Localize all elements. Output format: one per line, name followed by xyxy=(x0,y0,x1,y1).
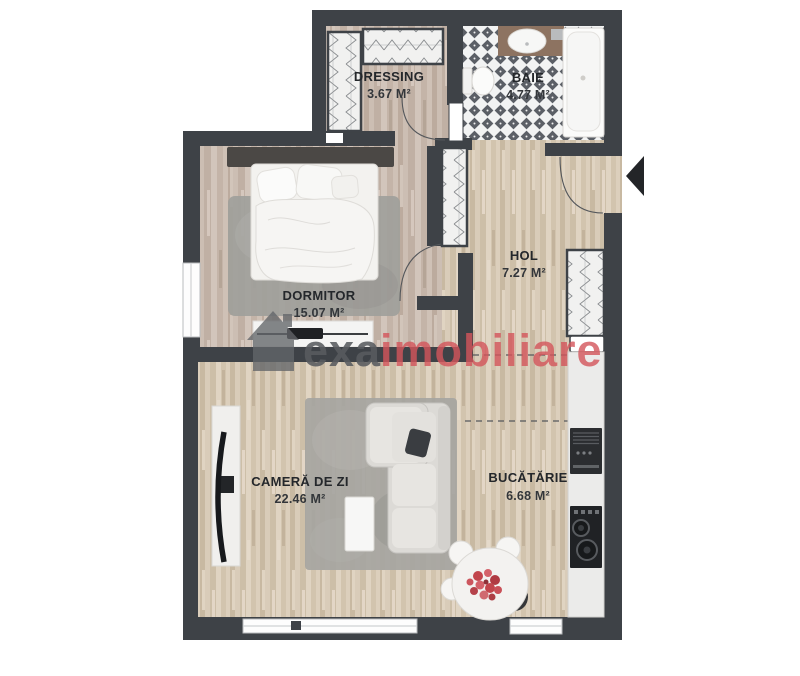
entrance-threshold-floor xyxy=(604,156,622,213)
room-area-bucatarie: 6.68 M² xyxy=(506,489,550,503)
wall-top xyxy=(312,10,622,26)
wall-right-lower xyxy=(604,213,622,617)
bathtub xyxy=(563,28,604,137)
entrance-arrow-icon xyxy=(626,156,644,196)
room-label-dressing: DRESSING xyxy=(354,69,424,84)
wall-bedroom-left-lower xyxy=(183,337,200,347)
baie-door-leaf xyxy=(449,103,463,141)
sink xyxy=(508,29,546,53)
wardrobe xyxy=(567,250,604,336)
living-window xyxy=(243,619,417,633)
room-area-dressing: 3.67 M² xyxy=(367,87,411,101)
bath-accessory xyxy=(551,29,564,40)
coffee-table xyxy=(345,497,374,551)
wall-dressing-left xyxy=(312,26,326,131)
wall-right-upper xyxy=(604,10,622,156)
oven xyxy=(570,428,602,474)
room-area-hol: 7.27 M² xyxy=(502,266,546,280)
wall-dressing-baie-divider xyxy=(447,10,463,105)
wall-bedroom-hol-divider xyxy=(427,146,442,246)
bedroom-window xyxy=(183,263,200,337)
room-label-dormitor: DORMITOR xyxy=(283,288,356,303)
wall-niche xyxy=(326,133,343,143)
room-area-camera-de-zi: 22.46 M² xyxy=(275,492,326,506)
wall-bedroom-top xyxy=(183,131,395,146)
room-label-bucatarie: BUCĂTĂRIE xyxy=(488,470,567,485)
bed xyxy=(227,147,394,283)
toilet xyxy=(463,67,494,95)
floor-plan: DRESSING 3.67 M² BAIE 4.77 M² DORMITOR 1… xyxy=(0,0,800,676)
room-area-baie: 4.77 M² xyxy=(506,88,550,102)
room-area-dormitor: 15.07 M² xyxy=(294,306,345,320)
room-label-camera-de-zi: CAMERĂ DE ZI xyxy=(251,474,349,489)
watermark-brand-gray: exa xyxy=(303,325,381,376)
wall-entrance-nook xyxy=(545,143,604,156)
pillow xyxy=(331,175,359,199)
wardrobe xyxy=(363,29,443,64)
duvet xyxy=(256,199,375,283)
tv-console xyxy=(212,406,240,566)
tv-mount xyxy=(220,476,234,493)
kitchen-counter xyxy=(568,352,604,617)
room-label-baie: BAIE xyxy=(512,70,544,85)
room-label-hol: HOL xyxy=(510,248,538,263)
wall-left-lower xyxy=(183,362,198,617)
pillow xyxy=(256,166,299,204)
watermark-brand-red: imobiliare xyxy=(380,325,603,376)
floor-plan-svg: DRESSING 3.67 M² BAIE 4.77 M² DORMITOR 1… xyxy=(0,0,800,676)
cooktop xyxy=(570,506,602,568)
sink-drain xyxy=(525,42,529,46)
wardrobe xyxy=(442,148,467,246)
kitchen-window xyxy=(510,619,562,634)
wall-bedroom-left-upper xyxy=(183,146,200,263)
